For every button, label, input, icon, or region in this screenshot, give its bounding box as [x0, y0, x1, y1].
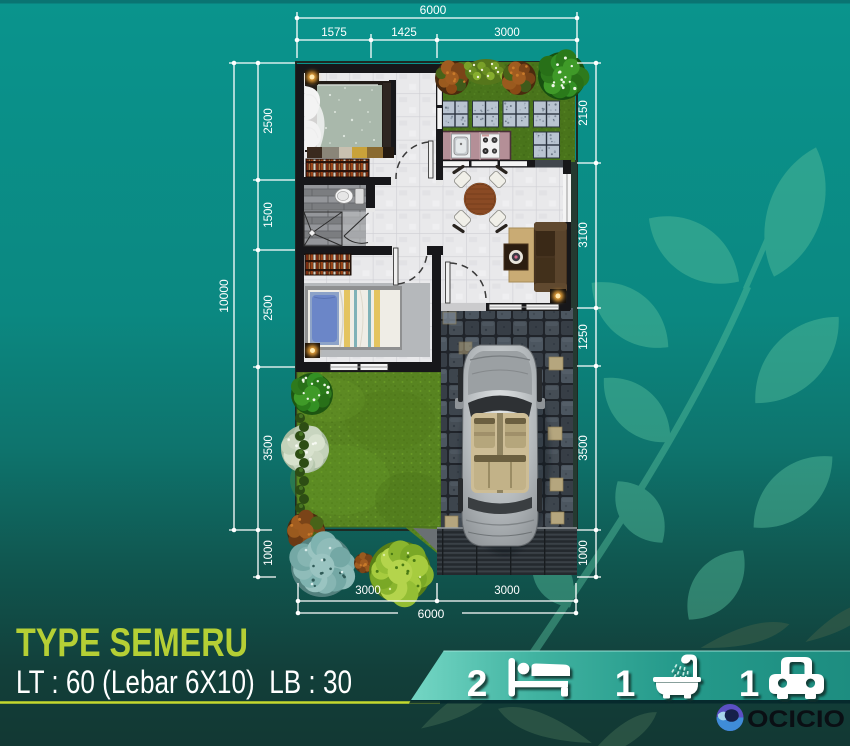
svg-text:3500: 3500: [263, 435, 275, 461]
svg-text:1000: 1000: [578, 540, 590, 566]
svg-text:3000: 3000: [494, 585, 520, 597]
svg-text:TYPE SEMERU: TYPE SEMERU: [16, 621, 248, 665]
svg-text:2500: 2500: [263, 108, 275, 134]
svg-text:2150: 2150: [578, 100, 590, 126]
svg-text:1425: 1425: [391, 27, 417, 39]
svg-text:3000: 3000: [494, 27, 520, 39]
svg-text:3100: 3100: [578, 222, 590, 248]
svg-text:2: 2: [467, 663, 488, 704]
svg-text:1000: 1000: [263, 540, 275, 566]
svg-text:2500: 2500: [263, 295, 275, 321]
svg-text:6000: 6000: [420, 3, 447, 17]
svg-text:1500: 1500: [263, 202, 275, 228]
svg-text:1575: 1575: [321, 27, 347, 39]
svg-text:10000: 10000: [217, 279, 231, 313]
svg-text:3500: 3500: [578, 435, 590, 461]
svg-text:OCICIO: OCICIO: [747, 706, 845, 733]
svg-text:LT : 60 (Lebar 6X10) LB : 30: LT : 60 (Lebar 6X10) LB : 30: [16, 664, 352, 700]
svg-text:1: 1: [739, 663, 760, 704]
svg-text:1250: 1250: [578, 324, 590, 350]
svg-text:6000: 6000: [418, 607, 445, 621]
svg-text:3000: 3000: [355, 585, 381, 597]
svg-text:1: 1: [615, 663, 636, 704]
